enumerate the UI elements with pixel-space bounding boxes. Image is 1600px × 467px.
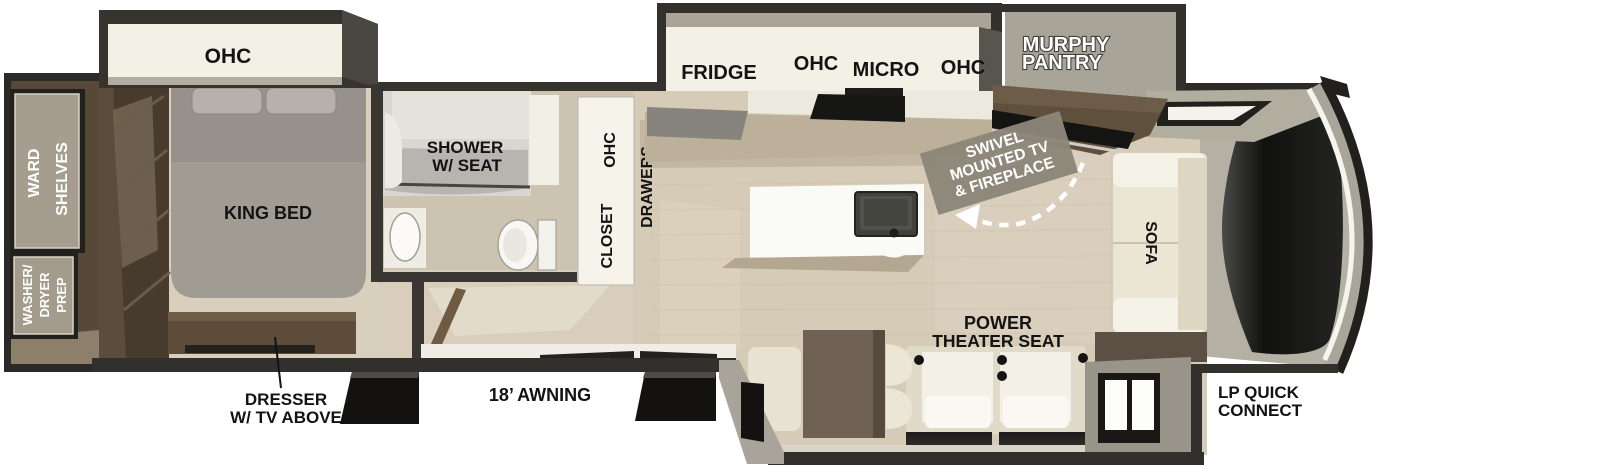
svg-text:POWER: POWER xyxy=(964,313,1032,333)
svg-text:WASHER/: WASHER/ xyxy=(20,264,35,325)
svg-text:FRIDGE: FRIDGE xyxy=(681,62,757,84)
svg-text:MICRO: MICRO xyxy=(853,59,920,81)
svg-text:OHC: OHC xyxy=(941,57,985,79)
svg-text:DRYER: DRYER xyxy=(37,272,52,318)
svg-text:18’ AWNING: 18’ AWNING xyxy=(489,385,591,405)
svg-text:PREP: PREP xyxy=(54,277,69,313)
svg-text:OHC: OHC xyxy=(205,45,252,68)
svg-text:OHC: OHC xyxy=(794,53,838,75)
svg-text:CONNECT: CONNECT xyxy=(1218,401,1303,420)
svg-text:DRESSER: DRESSER xyxy=(245,390,327,409)
svg-text:THEATER SEAT: THEATER SEAT xyxy=(932,331,1064,351)
svg-text:W/ TV ABOVE: W/ TV ABOVE xyxy=(230,408,342,427)
svg-text:KING BED: KING BED xyxy=(224,203,312,223)
svg-text:SHELVES: SHELVES xyxy=(54,142,71,216)
svg-text:PANTRY: PANTRY xyxy=(1022,52,1103,74)
svg-text:LP QUICK: LP QUICK xyxy=(1218,383,1300,402)
svg-text:SOFA: SOFA xyxy=(1142,221,1159,265)
svg-text:W/ SEAT: W/ SEAT xyxy=(432,156,502,175)
svg-text:SHOWER: SHOWER xyxy=(427,138,504,157)
svg-text:WARD: WARD xyxy=(26,149,43,198)
svg-text:CLOSET: CLOSET xyxy=(599,203,616,268)
svg-text:OHC: OHC xyxy=(602,132,619,168)
